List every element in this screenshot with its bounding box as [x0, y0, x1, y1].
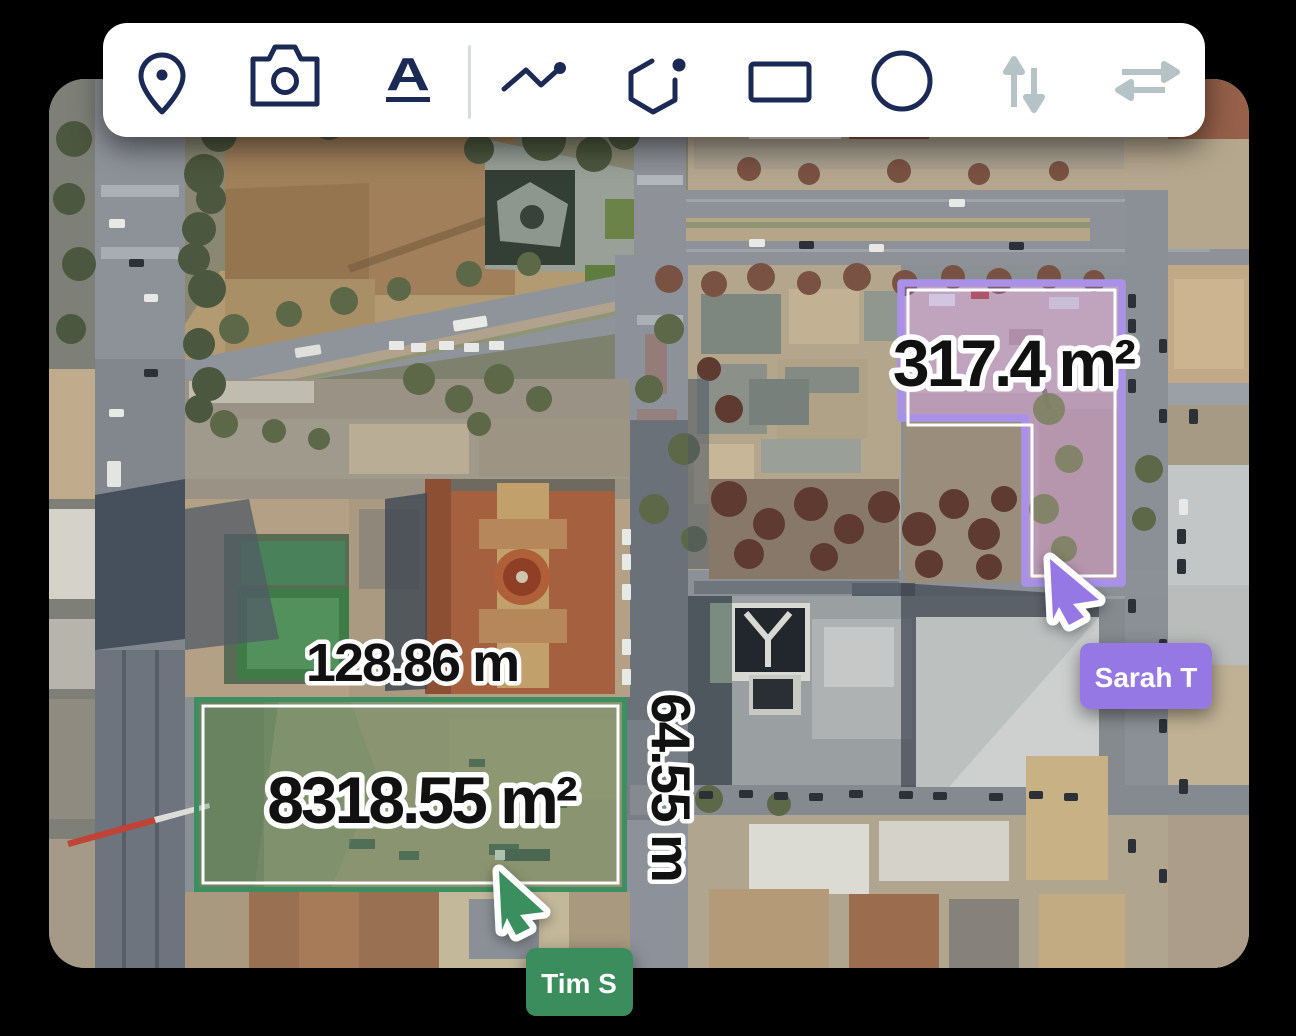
svg-text:Sarah T: Sarah T: [1095, 662, 1198, 693]
svg-text:64.55 m: 64.55 m: [640, 693, 702, 881]
svg-text:317.4 m²: 317.4 m²: [893, 326, 1135, 400]
svg-text:Tim S: Tim S: [541, 968, 617, 999]
svg-text:8318.55 m²: 8318.55 m²: [267, 763, 577, 837]
svg-text:128.86 m: 128.86 m: [306, 633, 518, 693]
